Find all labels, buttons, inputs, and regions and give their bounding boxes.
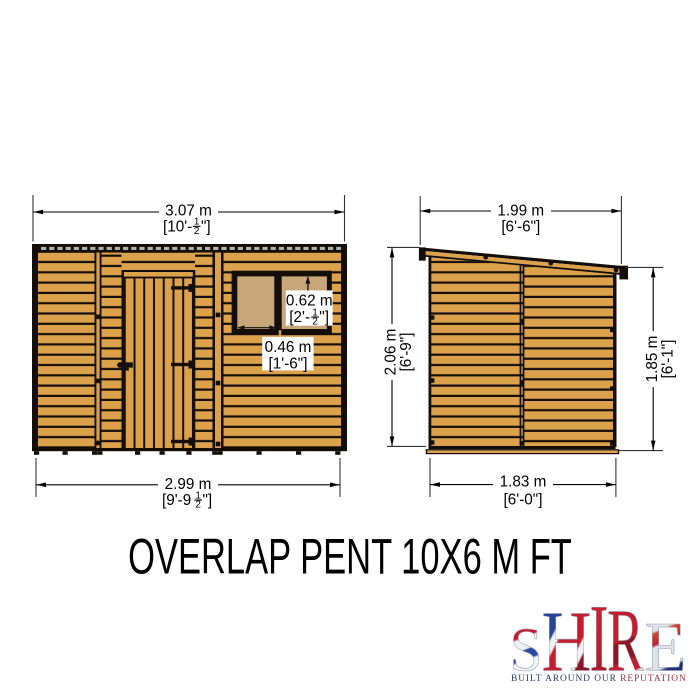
- svg-text:2: 2: [195, 500, 201, 511]
- svg-text:1.85 m: 1.85 m: [644, 336, 661, 383]
- svg-text:[6'-0"]: [6'-0"]: [504, 491, 543, 508]
- svg-text:2.06 m: 2.06 m: [383, 329, 400, 376]
- svg-text:2: 2: [194, 226, 200, 237]
- svg-text:1.99 m: 1.99 m: [497, 202, 544, 219]
- svg-text:[6'-9"]: [6'-9"]: [398, 333, 415, 372]
- svg-text:2: 2: [312, 317, 318, 328]
- svg-text:[2'-: [2'-: [289, 309, 310, 326]
- svg-text:[6'-6"]: [6'-6"]: [501, 219, 540, 236]
- svg-text:[9'-9: [9'-9: [162, 492, 191, 509]
- svg-text:[10'-: [10'-: [163, 218, 192, 235]
- svg-text:1.83 m: 1.83 m: [500, 474, 547, 491]
- svg-text:[6'-1"]: [6'-1"]: [660, 340, 677, 379]
- svg-text:2.99 m: 2.99 m: [165, 476, 212, 493]
- svg-text:"]: "]: [203, 492, 213, 509]
- svg-text:3.07 m: 3.07 m: [165, 202, 212, 219]
- svg-text:OVERLAP PENT 10X6 M FT: OVERLAP PENT 10X6 M FT: [128, 529, 572, 585]
- svg-text:0.46 m: 0.46 m: [265, 339, 312, 356]
- svg-text:"]: "]: [319, 309, 329, 326]
- svg-text:[1'-6"]: [1'-6"]: [269, 356, 308, 373]
- svg-text:"]: "]: [201, 218, 211, 235]
- svg-text:0.62 m: 0.62 m: [286, 293, 333, 310]
- svg-text:BUILT AROUND OUR REPUTATION: BUILT AROUND OUR REPUTATION: [511, 674, 687, 684]
